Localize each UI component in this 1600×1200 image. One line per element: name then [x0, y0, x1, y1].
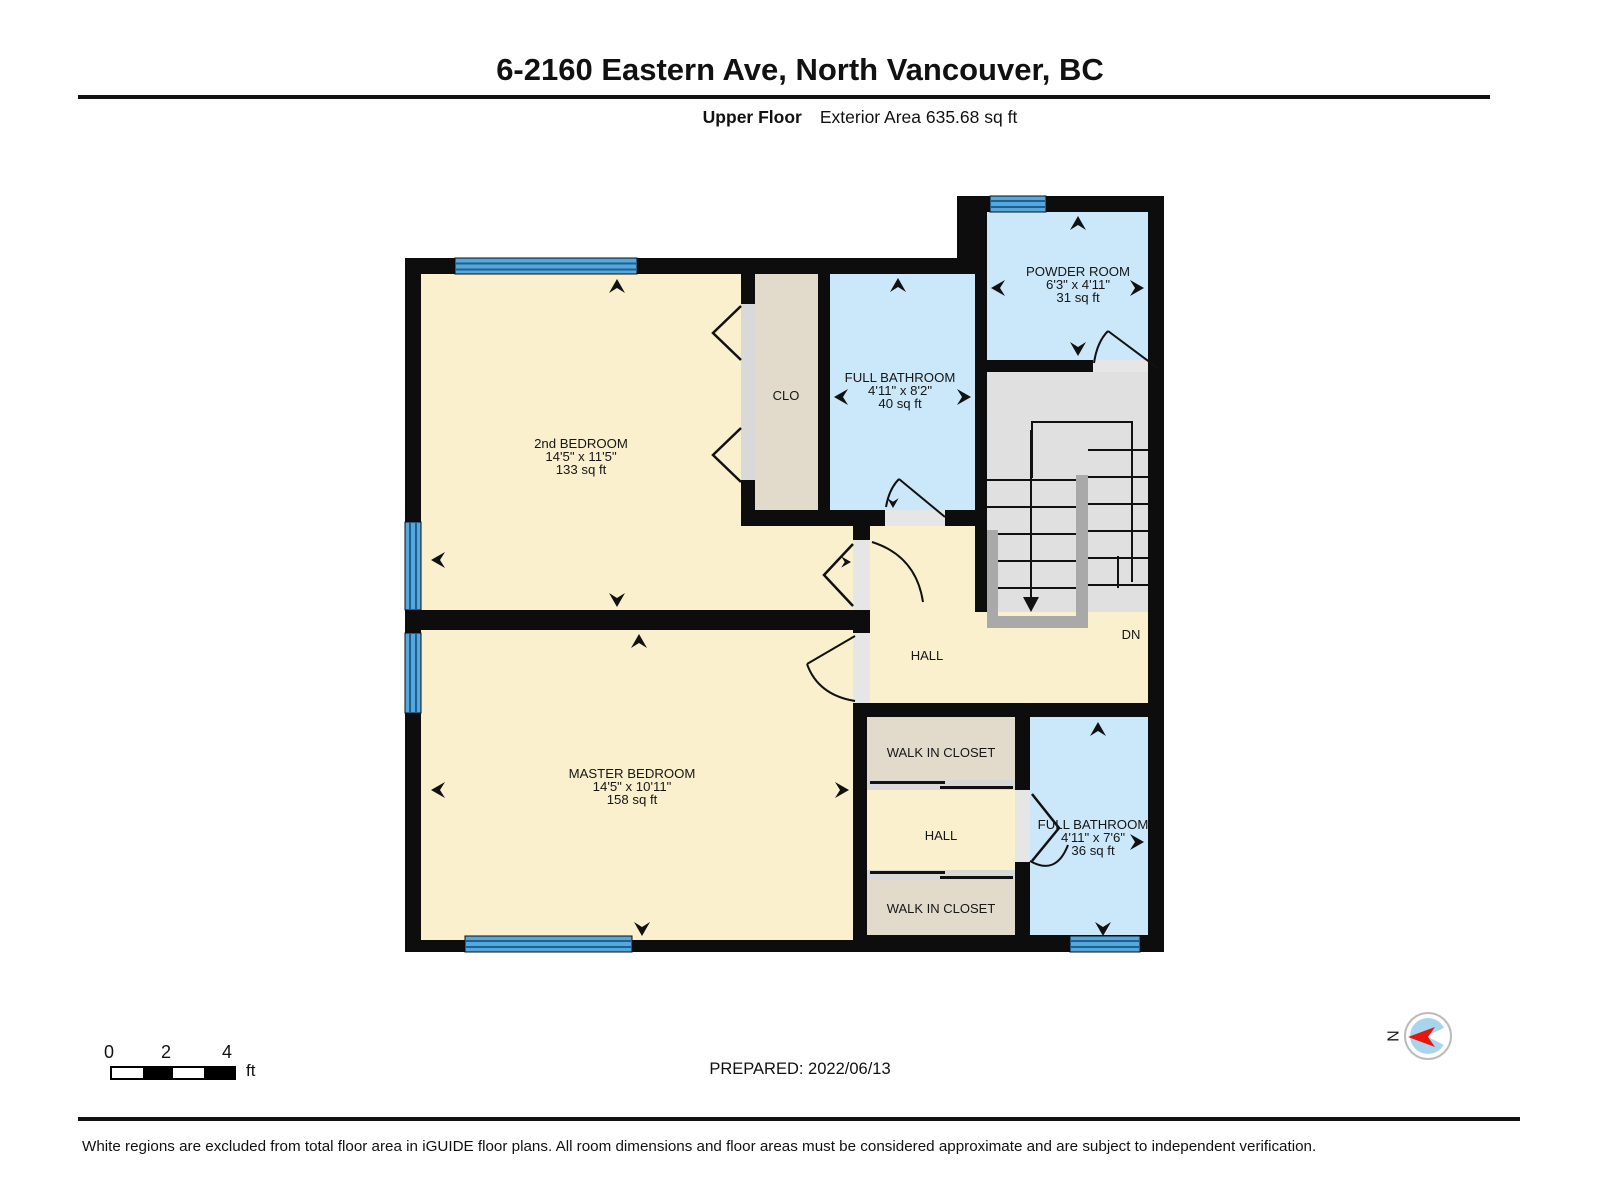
door-threshold: [885, 510, 945, 526]
floor-plan: 2nd BEDROOM14'5" x 11'5"133 sq ft MASTER…: [0, 0, 1600, 1200]
window: [405, 633, 421, 713]
window: [455, 258, 637, 274]
footer-divider: [78, 1117, 1520, 1121]
door-threshold: [1015, 790, 1030, 862]
stair-railing: [987, 530, 998, 628]
compass-north-label: N: [1384, 1030, 1401, 1042]
prepared-date: PREPARED: 2022/06/13: [0, 1060, 1600, 1079]
closet-track: [741, 274, 755, 510]
window: [1070, 936, 1140, 952]
stairs-down-label: DN: [1122, 627, 1141, 642]
sliding-door-leaf: [940, 786, 1013, 789]
sliding-door-leaf: [940, 876, 1013, 879]
stair-railing: [1076, 475, 1088, 628]
window: [990, 196, 1046, 212]
door-threshold: [853, 540, 870, 610]
door-threshold: [853, 633, 870, 703]
sliding-door-leaf: [870, 781, 945, 784]
stair-railing: [987, 616, 1088, 628]
door-threshold: [1093, 360, 1148, 372]
window: [405, 522, 421, 610]
sliding-door-leaf: [870, 871, 945, 874]
room-label-hall-upper: HALL: [911, 648, 944, 663]
room-label-walk-in-closet-top: WALK IN CLOSET: [887, 745, 996, 760]
room-label-closet: CLO: [773, 388, 800, 403]
disclaimer-text: White regions are excluded from total fl…: [82, 1138, 1316, 1155]
compass: N: [1384, 1013, 1452, 1059]
room-label-hall-lower: HALL: [925, 828, 958, 843]
room-label-walk-in-closet-bottom: WALK IN CLOSET: [887, 901, 996, 916]
closet-track-stub-bottom: [741, 480, 755, 510]
room-stairwell: [987, 372, 1148, 612]
closet-track-stub-top: [741, 274, 755, 304]
window: [465, 936, 632, 952]
